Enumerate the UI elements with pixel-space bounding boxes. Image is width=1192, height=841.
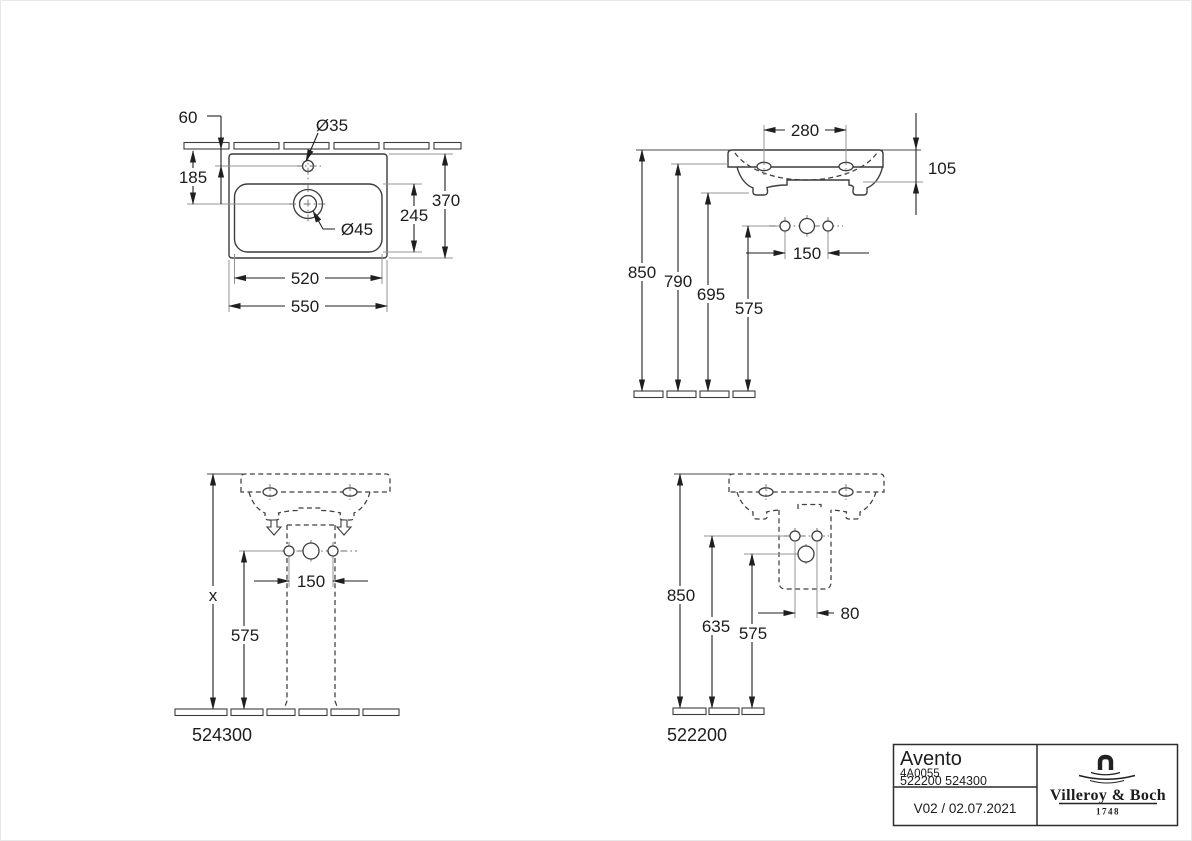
leader-drain-dia: Ø45 xyxy=(313,211,373,239)
front-view: 280 105 150 xyxy=(624,113,956,398)
dim-height-695: 695 xyxy=(693,193,749,391)
dim-height-790: 790 xyxy=(660,164,728,391)
dim-height-850: 850 xyxy=(624,150,661,391)
front-view-with-pedestal: 150 x 575 524300 xyxy=(175,474,399,745)
brand-name: Villeroy & Boch xyxy=(1050,787,1166,804)
dim-inner-width: 520 xyxy=(235,269,383,288)
dim-height-575: 575 xyxy=(735,554,772,708)
dim-label-850: 850 xyxy=(667,586,695,605)
water-ripple-icon xyxy=(1090,781,1124,784)
dim-label-150: 150 xyxy=(297,572,325,591)
floor-hatch xyxy=(634,391,755,398)
dim-label-105: 105 xyxy=(928,159,956,178)
title-block: Avento 4A0055 522200 524300 V02 / 02.07.… xyxy=(894,745,1178,826)
villeroy-boch-logo: Villeroy & Boch 1748 xyxy=(1050,757,1166,817)
dim-faucet-depth: 185 xyxy=(173,151,213,204)
dim-label-dia35: Ø35 xyxy=(316,116,348,135)
dim-label-280: 280 xyxy=(791,121,819,140)
model-number: 524300 xyxy=(192,725,252,745)
dim-label-150: 150 xyxy=(793,244,821,263)
dim-height-850: 850 xyxy=(662,474,699,708)
floor-hatch xyxy=(673,708,764,715)
dim-height-575: 575 xyxy=(730,226,767,391)
dim-label-575: 575 xyxy=(231,626,259,645)
dim-fixing-spacing: 150 xyxy=(746,233,869,263)
dim-label-695: 695 xyxy=(697,285,725,304)
series-name: Avento xyxy=(900,748,962,770)
dim-label-dia45: Ø45 xyxy=(341,220,373,239)
dim-height-575: 575 xyxy=(226,551,263,709)
fixing-holes xyxy=(239,540,357,562)
basin-rim-hidden xyxy=(241,474,390,492)
model-number: 522200 xyxy=(667,725,727,745)
plan-view: 60 185 Ø35 Ø45 245 370 xyxy=(173,108,466,316)
dim-total-depth: 370 xyxy=(426,154,466,258)
overflow-ledge-hidden xyxy=(798,505,821,510)
dim-label-575: 575 xyxy=(739,624,767,643)
version-date: V02 / 02.07.2021 xyxy=(914,801,1017,816)
dim-label-x: x xyxy=(209,586,218,605)
water-ripple-icon xyxy=(1079,776,1135,780)
dim-rear-offset: 60 xyxy=(179,108,221,204)
basin-rim xyxy=(728,150,883,167)
dim-label-370: 370 xyxy=(432,191,460,210)
dim-label-635: 635 xyxy=(702,617,730,636)
dim-height-x: x xyxy=(204,474,222,709)
dim-height-635: 635 xyxy=(698,536,735,708)
faucet-icon xyxy=(1100,757,1111,770)
technical-drawing: 60 185 Ø35 Ø45 245 370 xyxy=(1,1,1192,841)
side-view-compact: 80 850 635 575 522200 xyxy=(662,474,884,745)
dim-rim-height: 105 xyxy=(863,113,956,215)
model-numbers: 522200 524300 xyxy=(900,774,987,788)
dim-label-245: 245 xyxy=(400,206,428,225)
dim-label-550: 550 xyxy=(291,297,319,316)
fixing-holes xyxy=(704,528,829,564)
drain-hole xyxy=(289,185,327,223)
dim-mount-hole-spacing: 280 xyxy=(764,121,846,160)
dim-label-80: 80 xyxy=(841,604,860,623)
basin-body xyxy=(737,167,883,195)
basin-body-hidden-left xyxy=(737,492,779,519)
mounting-arrow-icon xyxy=(337,520,351,535)
dim-label-60: 60 xyxy=(179,108,198,127)
wall-hatch xyxy=(184,143,461,150)
dimension-drawing-sheet: 60 185 Ø35 Ø45 245 370 xyxy=(0,0,1192,841)
dim-label-850: 850 xyxy=(628,263,656,282)
basin-rim-hidden xyxy=(729,474,884,492)
dim-label-790: 790 xyxy=(664,272,692,291)
basin-body-hidden-right xyxy=(831,492,876,519)
dim-label-520: 520 xyxy=(291,269,319,288)
dim-total-width: 550 xyxy=(229,297,387,316)
dim-label-575: 575 xyxy=(735,299,763,318)
dim-label-185: 185 xyxy=(179,168,207,187)
water-ripple-icon xyxy=(1091,773,1120,775)
floor-hatch xyxy=(175,709,399,716)
mounting-arrow-icon xyxy=(267,520,281,535)
brand-founded-year: 1748 xyxy=(1096,807,1120,817)
dim-fixing-spacing: 150 xyxy=(254,558,368,591)
